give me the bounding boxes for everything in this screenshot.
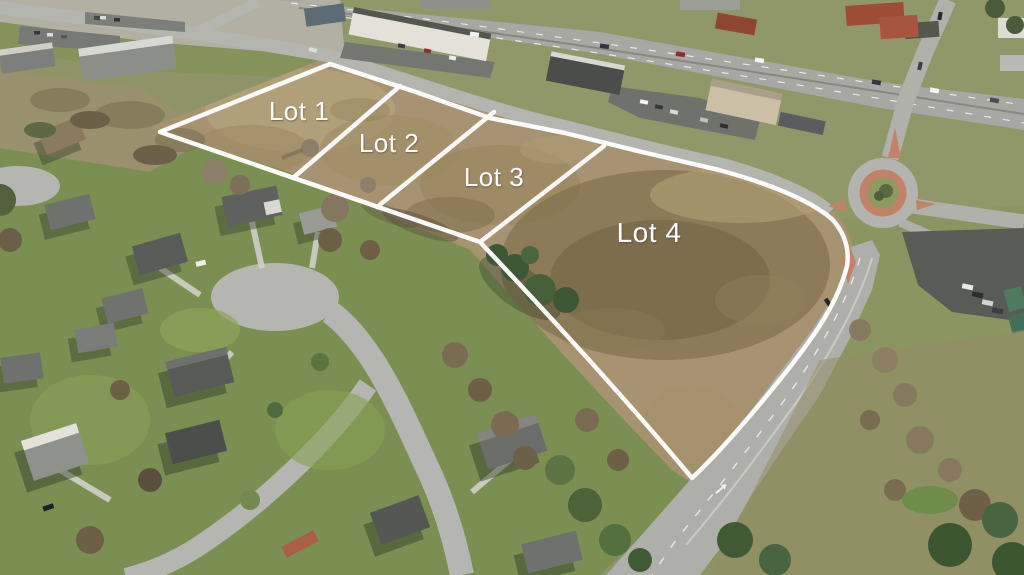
aerial-photo: Lot 1 Lot 2 Lot 3 Lot 4 (0, 0, 1024, 575)
lot-3-label: Lot 3 (464, 162, 524, 192)
lot-4-label: Lot 4 (617, 217, 682, 248)
aerial-photo-canvas: Lot 1 Lot 2 Lot 3 Lot 4 (0, 0, 1024, 575)
lot-2-label: Lot 2 (359, 128, 419, 158)
lot-1-label: Lot 1 (269, 96, 329, 126)
